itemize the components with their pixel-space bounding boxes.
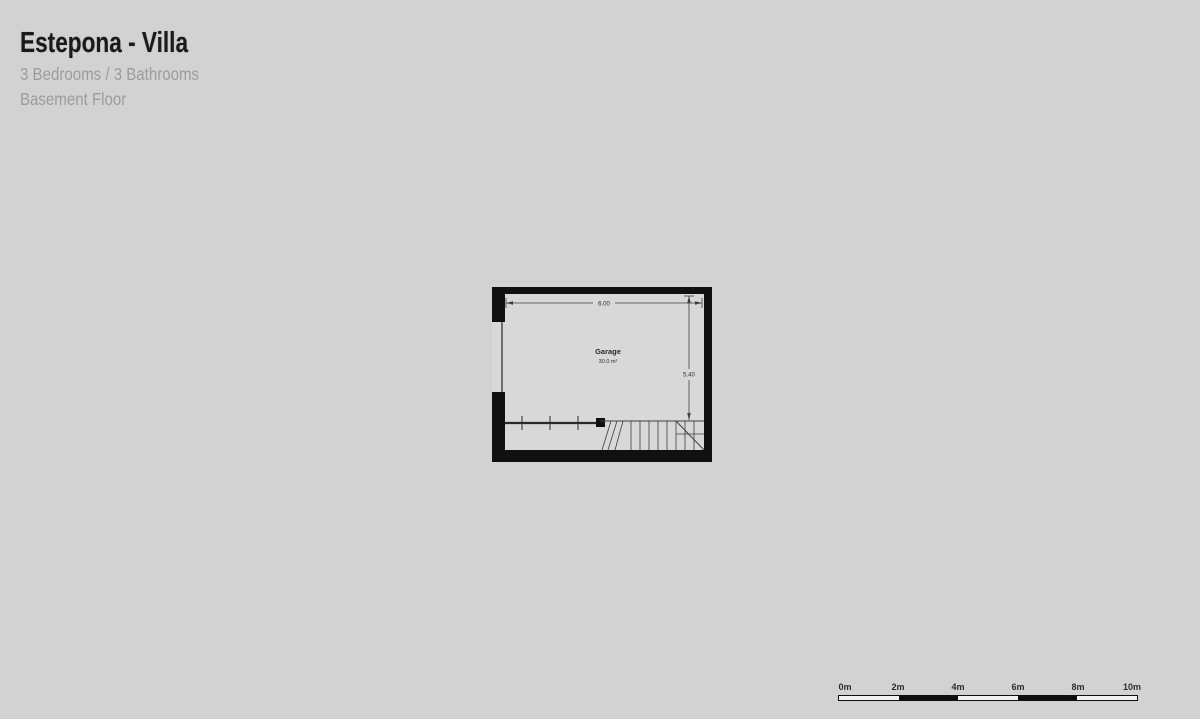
scale-bar: 0m 2m 4m 6m 8m 10m [838,682,1138,704]
floor-plan-drawing: 6.00 5.40 Garage 30.0 m² [492,287,712,462]
scale-tick-label: 6m [1011,682,1024,692]
header: Estepona - Villa 3 Bedrooms / 3 Bathroom… [20,27,235,60]
scale-tick-label: 2m [891,682,904,692]
wall-bottom [492,450,712,462]
scale-segment [1018,696,1078,700]
scale-tick-label: 8m [1071,682,1084,692]
scale-segment [958,696,1018,700]
scale-tick-label: 10m [1123,682,1141,692]
dim-height-label: 5.40 [683,373,695,379]
bedrooms-bathrooms-label: 3 Bedrooms / 3 Bathrooms [20,64,199,85]
scale-tick-label: 4m [951,682,964,692]
wall-left-lower [492,392,505,462]
wall-top [492,287,712,294]
scale-segment [1077,696,1137,700]
dim-width-label: 6.00 [598,302,610,308]
scale-bar-ruler [838,695,1138,701]
scale-segment [839,696,899,700]
wall-left-upper [492,287,505,322]
floor-plan: 6.00 5.40 Garage 30.0 m² [492,287,712,462]
page-title: Estepona - Villa [20,27,188,60]
page: Estepona - Villa 3 Bedrooms / 3 Bathroom… [0,0,1200,719]
floor-name-label: Basement Floor [20,89,126,110]
wall-right [704,287,712,462]
scale-tick-label: 0m [838,682,851,692]
room-name-label: Garage [595,347,621,356]
scale-segment [899,696,959,700]
railing-end-post [596,418,605,427]
room-area-label: 30.0 m² [599,359,618,365]
